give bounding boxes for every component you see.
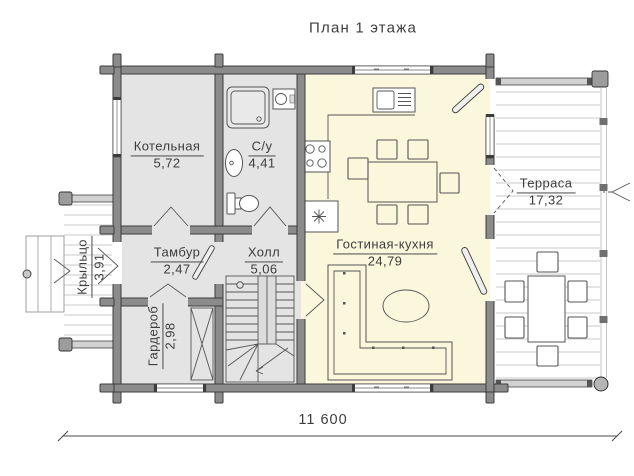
terrace-chair [537, 346, 558, 366]
terrace-top-beam [496, 78, 592, 85]
dimension-label: 11 600 [298, 412, 347, 428]
room-label-krylco: Крыльцо 3,91 [75, 236, 106, 298]
window [352, 384, 433, 392]
terrace-round-post [594, 377, 608, 391]
wall-sink [226, 150, 243, 177]
washbasin [273, 89, 295, 109]
terrace [496, 71, 630, 391]
porch-post [59, 338, 72, 351]
window [154, 384, 206, 392]
dimension-line [58, 431, 622, 441]
terrace-chair [537, 252, 558, 272]
porch-steps [23, 236, 70, 312]
room-label-kotelnaya: Котельная 5,72 [131, 139, 204, 170]
porch-bottom-beam [72, 341, 113, 348]
dining-table [368, 162, 437, 202]
wall-interior-c [297, 74, 305, 384]
fireplace [302, 201, 338, 232]
room-label-tambur: Тамбур 2,47 [151, 245, 204, 276]
room-label-terrasa: Терраса 17,32 [517, 176, 576, 207]
terrace-chair [505, 317, 524, 338]
terrace-chair [505, 281, 524, 302]
terrace-corner-post [592, 71, 608, 87]
wall-exterior-top [113, 66, 494, 74]
terrace-chair [568, 281, 587, 302]
window [486, 114, 494, 158]
terrace-railing [601, 88, 607, 378]
room-label-garderob: Гардероб 2,98 [146, 303, 177, 369]
porch-top-beam [72, 195, 113, 202]
door-swing-dashed [494, 168, 513, 213]
room-label-gostinaya-kuhnya: Гостиная-кухня 24,79 [333, 237, 437, 268]
terrace-bottom-beam [496, 380, 592, 387]
window [352, 66, 433, 74]
stove [303, 141, 330, 172]
room-label-holl: Холл 5,06 [245, 245, 283, 276]
shower [227, 87, 269, 128]
kitchen-sink [373, 88, 415, 112]
entry-arrow [612, 183, 630, 201]
room-label-su: С/у 4,41 [249, 139, 276, 170]
page-title: План 1 этажа [309, 20, 417, 37]
porch-post [59, 192, 72, 205]
terrace-chair [568, 317, 587, 338]
window [113, 97, 121, 157]
terrace-table [528, 276, 565, 342]
floor-plan: План 1 этажа Котельная 5,72 С/у 4,41 Там… [0, 0, 634, 476]
